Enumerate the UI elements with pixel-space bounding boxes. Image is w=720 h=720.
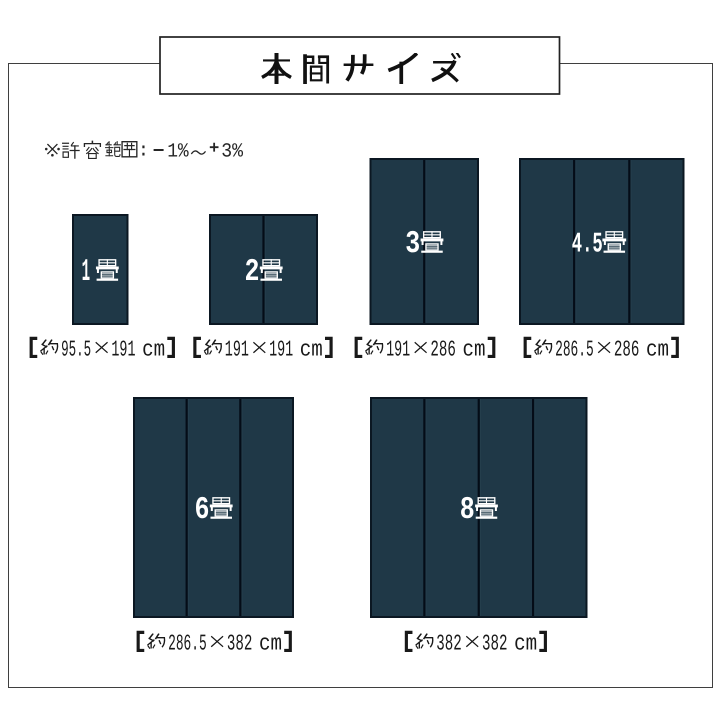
- svg-text:cm: cm: [259, 630, 282, 656]
- svg-text:3: 3: [405, 227, 420, 262]
- svg-text:286.5: 286.5: [168, 630, 207, 656]
- svg-text:1%: 1%: [167, 141, 189, 164]
- svg-text:382: 382: [482, 630, 508, 656]
- svg-text:382: 382: [436, 630, 462, 656]
- svg-text:6: 6: [195, 493, 210, 528]
- svg-text:191: 191: [269, 336, 293, 362]
- svg-text:4.5: 4.5: [572, 228, 603, 261]
- svg-text:382: 382: [227, 630, 253, 656]
- svg-text:191: 191: [386, 336, 410, 362]
- svg-text:286.5: 286.5: [555, 336, 594, 362]
- svg-text:cm: cm: [463, 336, 486, 362]
- svg-text:cm: cm: [514, 630, 537, 656]
- svg-text::: :: [138, 140, 149, 162]
- svg-text:286: 286: [430, 336, 456, 362]
- svg-text:286: 286: [614, 336, 640, 362]
- svg-text:95.5: 95.5: [61, 336, 91, 362]
- svg-text:191: 191: [111, 336, 135, 362]
- svg-text:1: 1: [82, 255, 91, 290]
- svg-text:2: 2: [245, 255, 260, 290]
- svg-text:3%: 3%: [221, 141, 244, 164]
- svg-text:cm: cm: [142, 336, 165, 362]
- svg-text:191: 191: [225, 336, 249, 362]
- svg-text:8: 8: [460, 493, 475, 528]
- svg-text:cm: cm: [646, 336, 669, 362]
- svg-text:cm: cm: [300, 336, 323, 362]
